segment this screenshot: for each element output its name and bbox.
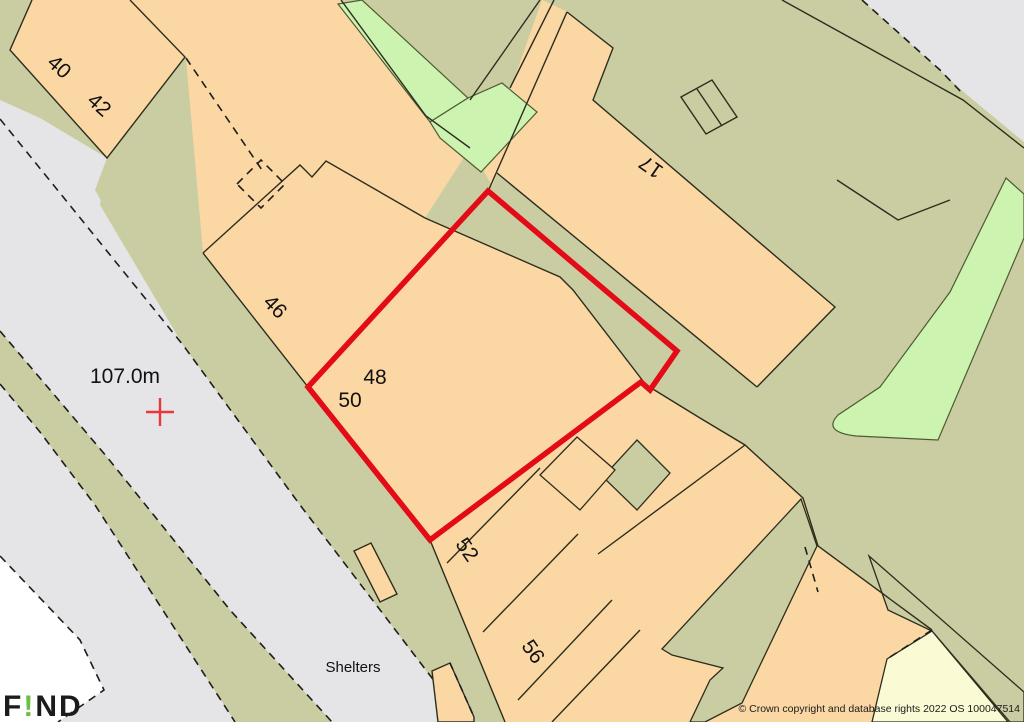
watermark-exclaim: !	[23, 690, 35, 722]
label-48: 48	[363, 366, 386, 389]
label-shelters: Shelters	[325, 659, 380, 676]
label-spot-height: 107.0m	[90, 365, 160, 388]
watermark-prefix: F	[3, 690, 23, 722]
watermark-suffix: ND	[35, 690, 82, 722]
copyright-notice: © Crown copyright and database rights 20…	[738, 703, 1020, 715]
label-50: 50	[338, 389, 361, 412]
map: 40 42 46 48 50 52 56 17 107.0m Shelters …	[0, 0, 1024, 722]
map-canvas: 40 42 46 48 50 52 56 17 107.0m Shelters …	[0, 0, 1024, 722]
find-watermark: F!ND	[3, 690, 83, 722]
